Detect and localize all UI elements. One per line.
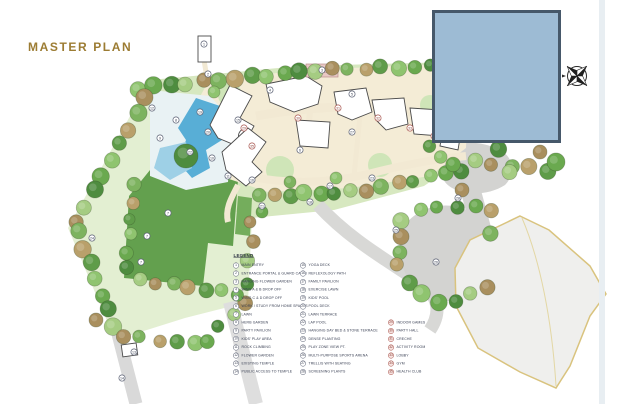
tree-icon <box>547 153 565 171</box>
tree-icon <box>284 176 296 188</box>
tree-icon <box>136 89 153 106</box>
legend-item: 31CRECHE <box>388 335 468 343</box>
svg-text:27: 27 <box>350 130 354 134</box>
map-marker: 1 <box>201 41 207 47</box>
legend-item-number: 6 <box>233 303 239 309</box>
tree-icon <box>200 335 214 349</box>
legend-item: 25PLAY ZONE VIEW PT. <box>300 343 388 351</box>
legend-item: 17FAMILY PAVILION <box>300 278 388 286</box>
map-marker: 13 <box>131 349 137 355</box>
svg-text:4: 4 <box>269 88 271 92</box>
legend-item-label: HEALTH CLUB <box>397 370 422 374</box>
legend-item-number: 29 <box>388 320 394 326</box>
legend-item-number: 19 <box>300 295 306 301</box>
tree-icon <box>325 61 339 75</box>
map-marker: 12 <box>149 105 155 111</box>
legend-item: 4WING A & B DROP OFF <box>233 286 300 294</box>
legend-item: 16REFLEXOLOGY PATH <box>300 269 388 277</box>
legend-item-number: 22 <box>300 320 306 326</box>
legend-item: 26MULTI-PURPOSE SPORTS ARENA <box>300 351 388 359</box>
tree-icon <box>359 184 374 199</box>
map-marker: 35 <box>249 143 255 149</box>
tree-icon <box>154 335 167 348</box>
legend-item-number: 15 <box>300 262 306 268</box>
tree-icon <box>521 158 537 174</box>
legend-item-number: 35 <box>388 369 394 375</box>
legend-item-label: MULTI-PURPOSE SPORTS ARENA <box>309 354 368 358</box>
svg-text:30: 30 <box>296 116 300 120</box>
tree-icon <box>104 153 120 169</box>
legend-item-label: HERB GARDEN <box>242 321 269 325</box>
map-marker: 22 <box>187 149 193 155</box>
tree-icon <box>226 70 244 88</box>
tree-icon <box>167 277 181 291</box>
legend-item: 8HERB GARDEN <box>233 319 300 327</box>
page-edge-strip <box>599 0 605 404</box>
map-marker: 30 <box>295 115 301 121</box>
map-marker: 6 <box>297 147 303 153</box>
svg-text:15: 15 <box>236 118 240 122</box>
legend-item-number: 24 <box>300 336 306 342</box>
map-marker: 25 <box>393 227 399 233</box>
svg-text:35: 35 <box>250 144 254 148</box>
legend-item-label: LAP POOL <box>309 321 327 325</box>
tree-icon <box>89 313 103 327</box>
map-marker: 7 <box>138 259 144 265</box>
tree-icon <box>215 283 228 296</box>
masked-region <box>432 10 561 143</box>
tree-icon <box>295 184 312 201</box>
tree-icon <box>414 203 427 216</box>
legend-item-label: TRELLIS WITH SEATING <box>309 362 351 366</box>
tree-icon <box>484 158 497 171</box>
tree-icon <box>133 330 146 343</box>
legend-item: 23HANGING DAY BED & STONE TERRACE <box>300 327 388 335</box>
tree-icon <box>174 144 198 168</box>
tree-icon <box>127 197 140 210</box>
tree-icon <box>483 226 499 242</box>
tree-icon <box>244 216 256 228</box>
tree-icon <box>252 188 266 202</box>
legend-item: 27TRELLIS WITH SEATING <box>300 360 388 368</box>
legend-item-label: KIDS' PLAY AREA <box>242 337 272 341</box>
tree-icon <box>87 271 102 286</box>
tree-icon <box>170 334 185 349</box>
tree-icon <box>446 157 461 172</box>
svg-text:7: 7 <box>146 234 148 238</box>
tree-icon <box>484 203 499 218</box>
legend-item-number: 8 <box>233 320 239 326</box>
legend-item-number: 26 <box>300 353 306 359</box>
tree-icon <box>130 104 147 121</box>
legend-item-number: 23 <box>300 328 306 334</box>
tree-icon <box>83 254 100 271</box>
legend-item: 12FLOWER GARDEN <box>233 351 300 359</box>
legend-item: 34GYM <box>388 360 468 368</box>
legend-item: 19KIDS' POOL <box>300 294 388 302</box>
svg-text:8: 8 <box>175 118 177 122</box>
legend-item-label: EXISTING TEMPLE <box>242 362 275 366</box>
legend-item: 28SCREENING PLANTS <box>300 368 388 376</box>
legend-panel: LEGEND 1MAIN ENTRY2ENTRANCE PORTAL & GUA… <box>233 253 479 385</box>
legend-item: 29INDOOR GAMES <box>388 319 468 327</box>
tree-icon <box>392 175 406 189</box>
tree-icon <box>125 228 137 240</box>
legend-item-number: 34 <box>388 361 394 367</box>
legend-item-number: 33 <box>388 353 394 359</box>
legend-item-number: 20 <box>300 303 306 309</box>
map-marker: 21 <box>259 203 265 209</box>
map-marker: 14 <box>119 375 125 381</box>
tree-icon <box>408 60 422 74</box>
svg-text:32: 32 <box>376 116 380 120</box>
legend-item-number: 13 <box>233 361 239 367</box>
svg-text:9: 9 <box>159 136 161 140</box>
legend-item: 9PARTY PAVILION <box>233 327 300 335</box>
legend-item-number: 12 <box>233 353 239 359</box>
legend-item: 13EXISTING TEMPLE <box>233 360 300 368</box>
map-marker: 10 <box>209 155 215 161</box>
map-marker: 27 <box>349 129 355 135</box>
legend-item-number: 18 <box>300 287 306 293</box>
legend-item: 30PARTY HALL <box>388 327 468 335</box>
legend-item-number: 16 <box>300 271 306 277</box>
legend-item-label: KIDS' POOL <box>309 296 330 300</box>
legend-item-label: ACTIVITY ROOM <box>397 346 426 350</box>
legend-item-label: HANGING DAY BED & STONE TERRACE <box>309 329 378 333</box>
tree-icon <box>268 188 282 202</box>
legend-item: 32ACTIVITY ROOM <box>388 343 468 351</box>
legend-item-label: ROCK CLIMBING <box>242 346 271 350</box>
tree-icon <box>208 86 220 98</box>
tree-icon <box>391 61 406 76</box>
map-marker: 20 <box>205 129 211 135</box>
legend-item-label: EXERCISE LAWN <box>309 288 339 292</box>
legend-item-label: MAIN ENTRY <box>242 264 265 268</box>
legend-item-number: 25 <box>300 344 306 350</box>
tree-icon <box>469 199 483 213</box>
svg-text:3: 3 <box>321 68 323 72</box>
legend-item-number: 28 <box>300 369 306 375</box>
svg-text:6: 6 <box>299 148 301 152</box>
svg-text:14: 14 <box>120 376 124 380</box>
svg-text:18: 18 <box>308 200 312 204</box>
legend-column: 1MAIN ENTRY2ENTRANCE PORTAL & GUARD CABI… <box>233 261 300 376</box>
legend-item-label: FLOWER GARDEN <box>242 354 274 358</box>
map-marker: 18 <box>307 199 313 205</box>
svg-text:19: 19 <box>198 110 202 114</box>
tree-icon <box>490 141 507 158</box>
tree-icon <box>124 214 135 225</box>
legend-item: 20POOL DECK <box>300 302 388 310</box>
map-marker: 33 <box>407 125 413 131</box>
map-marker: 24 <box>89 235 95 241</box>
svg-text:24: 24 <box>90 236 94 240</box>
tree-icon <box>149 278 161 290</box>
tree-icon <box>406 175 419 188</box>
tree-icon <box>373 179 389 195</box>
svg-text:22: 22 <box>188 150 192 154</box>
legend-item-label: PLAY ZONE VIEW PT. <box>309 346 346 350</box>
svg-text:31: 31 <box>336 106 340 110</box>
tree-icon <box>246 235 260 249</box>
legend-item: 15YOGA DECK <box>300 261 388 269</box>
map-marker: 11 <box>225 173 231 179</box>
tree-icon <box>278 66 293 81</box>
legend-item-label: LAWN TERRACE <box>309 313 338 317</box>
svg-text:7: 7 <box>140 260 142 264</box>
legend-item: 22LAP POOL <box>300 319 388 327</box>
legend-item-label: LAWN <box>242 313 252 317</box>
svg-text:28: 28 <box>456 196 460 200</box>
map-marker: 17 <box>327 183 333 189</box>
svg-text:1: 1 <box>203 42 205 46</box>
tree-icon <box>373 59 388 74</box>
legend-item-label: HANGING FLOWER GARDEN <box>242 280 292 284</box>
legend-item-number: 30 <box>388 328 394 334</box>
legend-item-label: YOGA DECK <box>309 264 331 268</box>
tree-icon <box>211 320 224 333</box>
legend-item-number: 1 <box>233 262 239 268</box>
legend-item: 7LAWN <box>233 310 300 318</box>
tree-icon <box>430 201 442 213</box>
map-marker: 23 <box>369 175 375 181</box>
tree-icon <box>330 172 342 184</box>
legend-item-number: 21 <box>300 312 306 318</box>
svg-text:2: 2 <box>207 72 209 76</box>
svg-text:7: 7 <box>167 211 169 215</box>
legend-item-number: 2 <box>233 271 239 277</box>
legend-column: 15YOGA DECK16REFLEXOLOGY PATH17FAMILY PA… <box>300 261 388 376</box>
map-marker: 16 <box>249 177 255 183</box>
legend-item: 21LAWN TERRACE <box>300 310 388 318</box>
legend-item-label: WING A & B DROP OFF <box>242 288 282 292</box>
legend-item-label: PARTY PAVILION <box>242 329 271 333</box>
legend-item-number: 31 <box>388 336 394 342</box>
tree-icon <box>434 151 447 164</box>
tree-icon <box>178 77 193 92</box>
tree-icon <box>259 69 274 84</box>
legend-item-label: SCREENING PLANTS <box>309 370 346 374</box>
legend-item-number: 5 <box>233 295 239 301</box>
map-marker: 3 <box>319 67 325 73</box>
svg-text:20: 20 <box>206 130 210 134</box>
map-marker: 4 <box>267 87 273 93</box>
tree-icon <box>180 279 195 294</box>
map-marker: 29 <box>241 125 247 131</box>
tree-icon <box>100 301 116 317</box>
legend-item: 35HEALTH CLUB <box>388 368 468 376</box>
svg-text:25: 25 <box>394 228 398 232</box>
legend-item-label: DENSE PLANTING <box>309 337 341 341</box>
legend-item-label: REFLEXOLOGY PATH <box>309 272 346 276</box>
map-marker: 8 <box>173 117 179 123</box>
legend-item-label: CRECHE <box>397 337 412 341</box>
svg-text:29: 29 <box>242 126 246 130</box>
tree-icon <box>119 246 133 260</box>
tree-icon <box>533 145 547 159</box>
svg-text:12: 12 <box>150 106 154 110</box>
legend-item: 24DENSE PLANTING <box>300 335 388 343</box>
legend-item-number: 9 <box>233 328 239 334</box>
legend-item-number: 32 <box>388 344 394 350</box>
tree-icon <box>86 181 103 198</box>
tree-icon <box>120 123 135 138</box>
svg-text:5: 5 <box>351 92 353 96</box>
svg-text:16: 16 <box>250 178 254 182</box>
legend-item-label: GYM <box>397 362 405 366</box>
legend-item-number: 17 <box>300 279 306 285</box>
building-block <box>296 120 330 148</box>
tree-icon <box>424 169 437 182</box>
tree-icon <box>76 200 91 215</box>
legend-item: 2ENTRANCE PORTAL & GUARD CABIN <box>233 269 300 277</box>
svg-text:10: 10 <box>210 156 214 160</box>
tree-icon <box>393 213 409 229</box>
legend-item: 10KIDS' PLAY AREA <box>233 335 300 343</box>
tree-icon <box>134 272 147 285</box>
legend-item-label: ENTRANCE PORTAL & GUARD CABIN <box>242 272 307 276</box>
map-marker: 7 <box>144 233 150 239</box>
master-plan-page: 1234567778910111213141516171819202122232… <box>0 0 618 404</box>
tree-icon <box>468 153 483 168</box>
legend-item-number: 3 <box>233 279 239 285</box>
page-title: MASTER PLAN <box>28 40 132 54</box>
map-marker: 31 <box>335 105 341 111</box>
map-marker: 19 <box>197 109 203 115</box>
map-marker: 2 <box>205 71 211 77</box>
legend-columns: 1MAIN ENTRY2ENTRANCE PORTAL & GUARD CABI… <box>233 261 479 376</box>
north-compass-icon <box>560 59 594 93</box>
svg-text:21: 21 <box>260 204 264 208</box>
map-marker: 28 <box>455 195 461 201</box>
legend-item-label: INDOOR GAMES <box>397 321 426 325</box>
tree-icon <box>291 63 308 80</box>
tree-icon <box>480 280 495 295</box>
svg-text:23: 23 <box>370 176 374 180</box>
legend-item-number: 11 <box>233 344 239 350</box>
legend-heading: LEGEND <box>234 253 480 258</box>
legend-item-number: 27 <box>300 361 306 367</box>
legend-item-number: 4 <box>233 287 239 293</box>
legend-item: 1MAIN ENTRY <box>233 261 300 269</box>
legend-item-number: 7 <box>233 312 239 318</box>
legend-item-label: PUBLIC ACCESS TO TEMPLE <box>242 370 293 374</box>
tree-icon <box>360 63 373 76</box>
map-marker: 15 <box>235 117 241 123</box>
svg-text:33: 33 <box>408 126 412 130</box>
svg-text:11: 11 <box>226 174 230 178</box>
legend-item-label: WING C & D DROP OFF <box>242 296 283 300</box>
legend-item-number: 14 <box>233 369 239 375</box>
map-marker: 7 <box>165 210 171 216</box>
legend-item-label: WORK / STUDY FROM HOME SPACES <box>242 305 308 309</box>
tree-icon <box>502 165 517 180</box>
svg-text:13: 13 <box>132 350 136 354</box>
legend-item: 6WORK / STUDY FROM HOME SPACES <box>233 302 300 310</box>
legend-item: 14PUBLIC ACCESS TO TEMPLE <box>233 368 300 376</box>
tree-icon <box>71 223 87 239</box>
legend-item-number: 10 <box>233 336 239 342</box>
tree-icon <box>116 329 131 344</box>
map-marker: 32 <box>375 115 381 121</box>
legend-item: 18EXERCISE LAWN <box>300 286 388 294</box>
legend-item: 5WING C & D DROP OFF <box>233 294 300 302</box>
legend-item: 33LOBBY <box>388 351 468 359</box>
tree-icon <box>199 283 214 298</box>
tree-icon <box>244 67 261 84</box>
tree-icon <box>451 201 465 215</box>
legend-item-label: FAMILY PAVILION <box>309 280 339 284</box>
map-marker: 9 <box>157 135 163 141</box>
tree-icon <box>119 260 133 274</box>
legend-item-label: POOL DECK <box>309 305 330 309</box>
map-marker: 5 <box>349 91 355 97</box>
tree-icon <box>341 63 354 76</box>
svg-text:17: 17 <box>328 184 332 188</box>
legend-item-label: LOBBY <box>397 354 409 358</box>
legend-item-label: PARTY HALL <box>397 329 419 333</box>
tree-icon <box>127 177 141 191</box>
tree-icon <box>112 136 126 150</box>
legend-column: 29INDOOR GAMES30PARTY HALL31CRECHE32ACTI… <box>388 261 468 376</box>
legend-item: 11ROCK CLIMBING <box>233 343 300 351</box>
entrance-portal <box>198 36 211 62</box>
legend-item: 3HANGING FLOWER GARDEN <box>233 278 300 286</box>
tree-icon <box>344 184 358 198</box>
